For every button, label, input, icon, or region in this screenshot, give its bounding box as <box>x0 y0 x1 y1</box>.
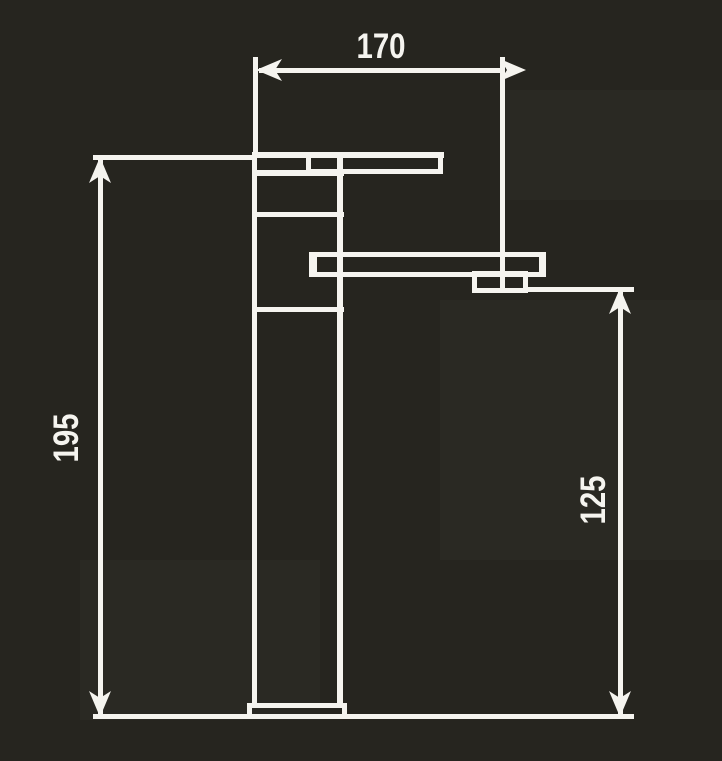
dim-170-dimension-line <box>259 68 503 73</box>
ground-line <box>93 714 634 719</box>
background-texture-patch <box>80 560 320 720</box>
dim-170-label: 170 <box>339 29 423 63</box>
arrow-up-icon <box>609 288 631 314</box>
background-texture-patch <box>500 90 722 200</box>
tap-body-left-line <box>252 155 257 703</box>
technical-drawing-canvas: 170 195 125 <box>0 0 722 761</box>
dim-195-label: 195 <box>38 413 94 463</box>
tap-cartridge-joint-line <box>252 170 344 176</box>
arrow-right-icon <box>500 59 526 81</box>
arrow-left-icon <box>256 59 282 81</box>
tap-body-right-line <box>337 155 343 703</box>
tap-body-joint-line-upper <box>252 212 344 217</box>
tap-body-top-line <box>252 152 444 158</box>
dim-195-extension-line-top <box>93 155 257 160</box>
arrow-up-icon <box>89 157 111 183</box>
dim-125-label: 125 <box>565 475 621 525</box>
dim-170-extension-line-right <box>500 57 505 293</box>
tap-body-joint-line-lower <box>252 307 344 312</box>
dim-195-dimension-line <box>98 160 103 716</box>
